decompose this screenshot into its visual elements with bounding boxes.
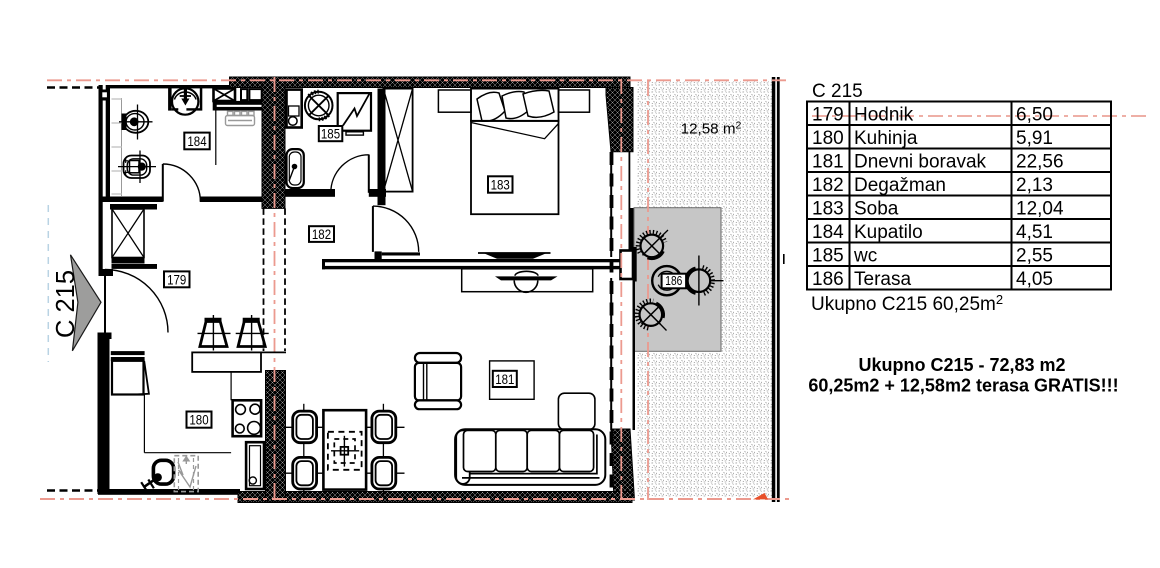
svg-text:C 215: C 215: [52, 270, 80, 338]
svg-text:4,51: 4,51: [1016, 222, 1053, 243]
svg-text:2,13: 2,13: [1016, 175, 1053, 196]
svg-text:Hodnik: Hodnik: [854, 105, 914, 126]
svg-text:Ukupno C215 60,25m2: Ukupno C215 60,25m2: [811, 292, 1003, 315]
svg-text:60,25m2 + 12,58m2 terasa GRATI: 60,25m2 + 12,58m2 terasa GRATIS!!!: [808, 376, 1118, 396]
svg-text:183: 183: [812, 199, 844, 220]
svg-text:C 215: C 215: [812, 81, 863, 102]
svg-text:185: 185: [812, 246, 844, 267]
svg-text:184: 184: [812, 222, 844, 243]
svg-text:181: 181: [495, 371, 514, 387]
svg-text:181: 181: [812, 152, 844, 173]
svg-text:180: 180: [189, 412, 208, 428]
svg-text:Kupatilo: Kupatilo: [854, 222, 923, 243]
svg-text:186: 186: [665, 274, 682, 288]
svg-text:182: 182: [812, 175, 844, 196]
svg-text:22,56: 22,56: [1016, 152, 1064, 173]
svg-text:Soba: Soba: [854, 199, 899, 220]
svg-text:179: 179: [167, 271, 186, 287]
svg-text:Terasa: Terasa: [854, 269, 911, 290]
svg-text:4,05: 4,05: [1016, 269, 1053, 290]
svg-text:Kuhinja: Kuhinja: [854, 128, 918, 149]
svg-text:185: 185: [321, 125, 340, 141]
svg-text:180: 180: [812, 128, 844, 149]
svg-text:12,04: 12,04: [1016, 199, 1064, 220]
svg-text:184: 184: [187, 133, 206, 149]
svg-text:183: 183: [491, 177, 510, 193]
svg-text:6,50: 6,50: [1016, 105, 1053, 126]
svg-text:Ukupno C215 - 72,83 m2: Ukupno C215 - 72,83 m2: [858, 355, 1065, 375]
svg-text:186: 186: [812, 269, 844, 290]
svg-text:wc: wc: [853, 246, 877, 267]
svg-text:Dnevni boravak: Dnevni boravak: [854, 152, 987, 173]
svg-text:Degažman: Degažman: [854, 175, 946, 196]
svg-text:5,91: 5,91: [1016, 128, 1053, 149]
svg-text:179: 179: [812, 105, 844, 126]
svg-text:2,55: 2,55: [1016, 246, 1053, 267]
svg-text:182: 182: [312, 226, 331, 242]
svg-text:12,58 m2: 12,58 m2: [681, 120, 742, 138]
